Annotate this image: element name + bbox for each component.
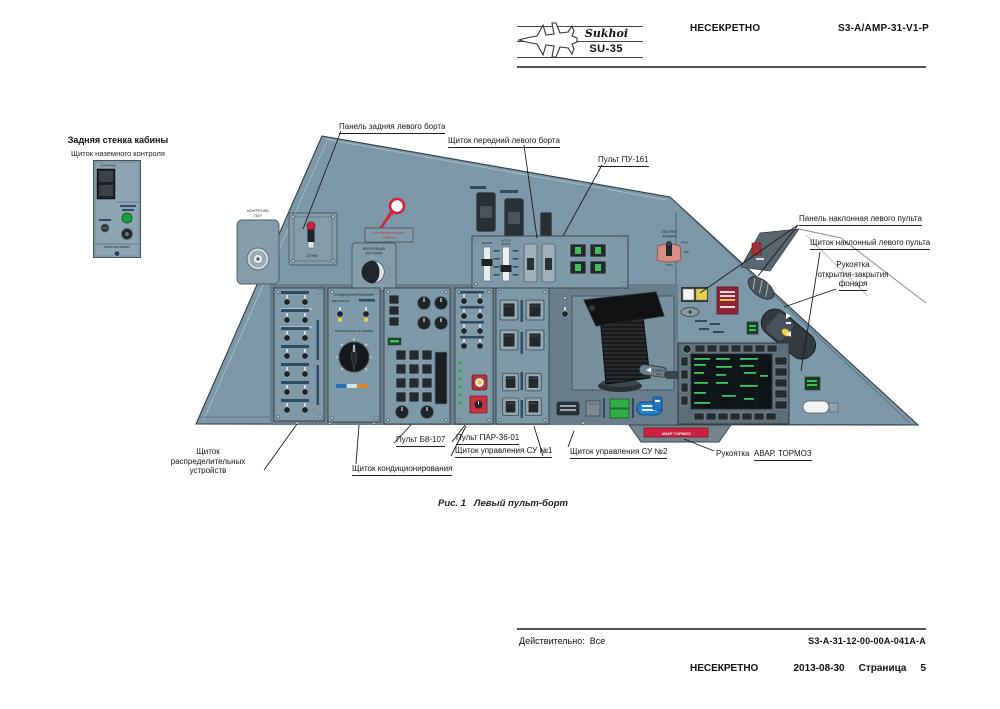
b8-display	[435, 352, 447, 404]
svg-text:ФОНАРЯ: ФОНАРЯ	[662, 235, 676, 239]
cond-title: КОНДИЦИОНИРОВАНИЕ	[334, 293, 374, 297]
nosok-label: НОСОК	[501, 239, 511, 243]
footer-rule	[517, 628, 926, 630]
kontrol-plu-unit: КОНТРОЛЬ ПЛУ	[237, 208, 279, 284]
svg-text:КРЫЛА: КРЫЛА	[501, 242, 511, 246]
footer-doc-code: S3-A-31-12-00-00A-041A-A	[808, 636, 926, 646]
rezhim-label: РЕЖИМ	[482, 241, 493, 245]
heat-chip	[358, 384, 368, 388]
canopy-frame-red-unit	[752, 243, 761, 255]
white-lever	[803, 401, 829, 413]
temp-label: ТЕМПЕРАТУРА В КАБИНЕ	[335, 329, 373, 333]
callout-shield-distrib: Щиток распределительных устройств	[150, 447, 266, 476]
green-window-2	[805, 377, 820, 390]
slider-knob	[501, 265, 512, 272]
par-36-01-panel	[455, 288, 493, 424]
b8-107-panel	[384, 288, 450, 424]
conditioning-panel: КОНДИЦИОНИРОВАНИЕ ВЕНТИЛЯТОР ТЕМПЕРАТУРА…	[328, 288, 380, 422]
razgerm-label: РАЗГЕРМЕТИЗАЦИЯ	[374, 231, 405, 235]
callout-brake-handle: Рукоятка АВАР. ТОРМОЗ	[716, 449, 812, 461]
obogrev-label: ОБОГРЕВ	[661, 230, 676, 234]
slider-knob	[482, 259, 493, 266]
callout-pu161: Пульт ПУ-161	[598, 155, 649, 167]
footer-page-label: Страница	[859, 663, 907, 674]
green-key	[610, 399, 629, 408]
yellow-marker	[338, 318, 342, 322]
green-window	[747, 322, 758, 334]
manual-page: Sukhoi SU-35 НЕСЕКРЕТНО S3-A/AMP-31-V1-P…	[0, 0, 1000, 709]
suit-ventilation-valve: ВЕНТИЛЯЦИЯ КОСТЮМА	[352, 243, 396, 291]
svg-text:ПЛУ: ПЛУ	[254, 213, 263, 218]
svg-text:КАБИНЫ: КАБИНЫ	[382, 236, 395, 240]
left-console-diagram: КОНТРОЛЬ ПЛУ ОГНИ РАЗГЕРМЕТИЗАЦИЯ КАБИНЫ	[0, 0, 1000, 709]
svg-text:ОТКЛ: ОТКЛ	[666, 263, 673, 267]
svg-text:АВТ: АВТ	[684, 250, 689, 254]
ogni-label: ОГНИ	[306, 253, 317, 258]
ventilator-label: ВЕНТИЛЯТОР	[332, 299, 350, 303]
vent-label: ВЕНТИЛЯЦИЯ	[363, 247, 386, 251]
footer-classification: НЕСЕКРЕТНО	[690, 663, 758, 674]
yellow-caution-light	[696, 289, 707, 300]
callout-shield-front: Щиток передний левого борта	[448, 136, 560, 148]
svg-text:КОСТЮМА: КОСТЮМА	[366, 252, 383, 256]
data-entry-keyboard	[678, 343, 789, 424]
ogni-switch-plate: ОГНИ	[289, 213, 337, 265]
callout-shield-inclined: Щиток наклонный левого пульта	[810, 238, 930, 250]
svg-text:РУЧН: РУЧН	[681, 241, 688, 245]
footer-page-info: 2013-08-30 Страница 5	[793, 663, 926, 674]
callout-su1: Щиток управления СУ №1	[455, 446, 552, 458]
callout-pult-b8: Пульт Б8-107	[396, 435, 445, 447]
callout-panel-inclined: Панель наклонная левого пульта	[799, 214, 922, 226]
emergency-brake-handle: АВАР ТОРМОЗ	[629, 425, 731, 442]
white-caution-light	[683, 289, 694, 300]
su1-panel	[496, 288, 549, 424]
svg-text:РУЧ: РУЧ	[656, 373, 662, 377]
cold-chip	[336, 384, 346, 388]
keyboard-screen	[691, 354, 772, 409]
avar-tormoz-label: АВАР ТОРМОЗ	[661, 431, 691, 436]
callout-su2: Щиток управления СУ №2	[570, 447, 667, 459]
callout-pult-par: Пульт ПАР-36-01	[456, 433, 519, 445]
callout-panel-rear: Панель задняя левого борта	[339, 122, 445, 134]
callout-shield-cond: Щиток кондиционирования	[352, 464, 452, 476]
pu161-panel: РЕЖИМ НОСОК КРЫЛА	[472, 236, 628, 288]
distribution-panel	[274, 288, 324, 421]
green-key	[610, 409, 629, 418]
blue-chip	[653, 397, 662, 410]
figure-caption: Рис. 1 Левый пульт-борт	[438, 498, 568, 509]
footer-page-number: 5	[920, 663, 926, 674]
footer-effectivity: Действительно: Все	[519, 636, 605, 646]
callout-canopy-handle: Рукоятка открытия-закрытия фонаря	[815, 260, 891, 291]
footer-date: 2013-08-30	[793, 663, 844, 674]
